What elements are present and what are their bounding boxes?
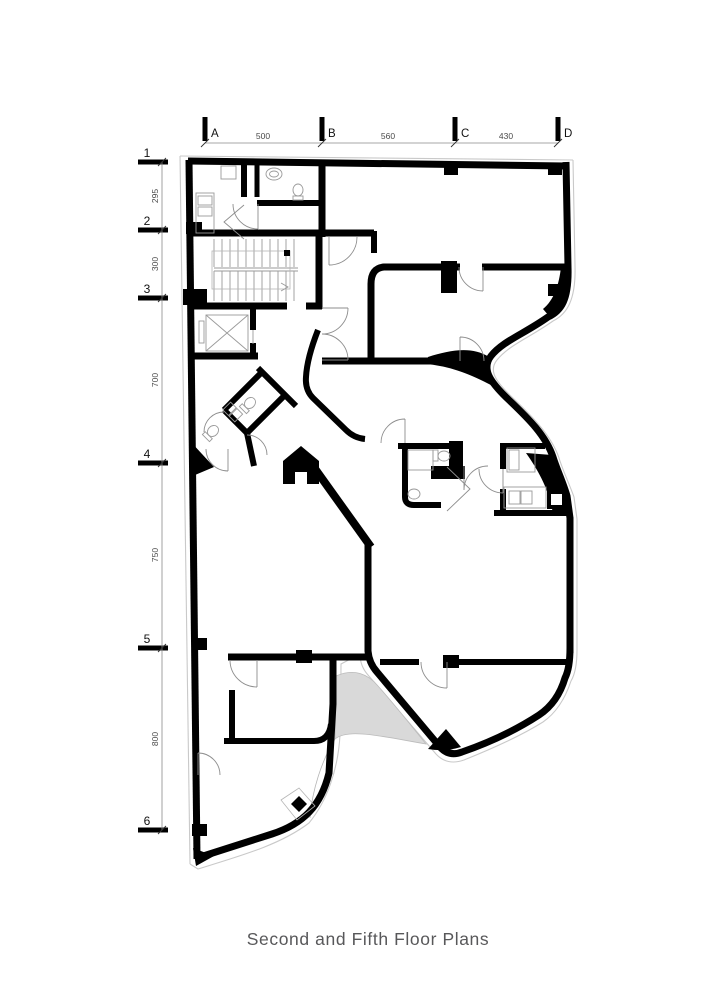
wall-block-right-bottom: [197, 660, 333, 858]
column-diamond: [291, 796, 307, 812]
dim-4-5: 750: [150, 548, 160, 562]
toilet-icon: [293, 184, 303, 196]
grid-label-c: C: [461, 128, 469, 140]
staircase: [212, 239, 298, 301]
grid-label-a: A: [211, 128, 219, 140]
stub-grid6: [192, 824, 207, 836]
grid-tick-B: [320, 117, 325, 141]
grid-tick-D: [556, 117, 561, 141]
door-right-room: [479, 469, 503, 493]
elevator-x-icon: [206, 315, 248, 351]
door-block-left: [198, 753, 220, 775]
elevator-rail: [199, 321, 204, 343]
stub-top-c: [444, 163, 458, 175]
grid-label-2: 2: [144, 214, 151, 228]
dim-5-6: 800: [150, 732, 160, 746]
grid-label-4: 4: [144, 447, 151, 461]
elevator: [199, 315, 253, 351]
wall-cluster-p2: [247, 395, 285, 433]
door-block-top: [230, 660, 257, 687]
dim-a-b: 500: [256, 131, 270, 141]
wall-right-curve: [487, 162, 570, 653]
grid-label-1: 1: [144, 146, 151, 160]
wall-corridor: [306, 330, 365, 439]
stub-top-d: [548, 163, 562, 175]
wall-block-inner-h: [224, 724, 331, 741]
grid-tick-C: [453, 117, 458, 141]
dim-2-3: 300: [150, 257, 160, 271]
core-pentagon: [283, 446, 319, 484]
drawing-title: Second and Fifth Floor Plans: [247, 929, 489, 949]
floor-plan: A B C D 500 560 430 1 2 3 4 5 6 295 300 …: [0, 0, 708, 1000]
grid-tick-A: [203, 117, 208, 141]
door-lobby-upper: [322, 308, 348, 334]
door-bath-topleft: [233, 204, 258, 229]
dim-c-d: 430: [499, 131, 513, 141]
dim-b-c: 560: [381, 131, 395, 141]
page: { "caption": "Second and Fifth Floor Pla…: [0, 0, 708, 1000]
grid-label-3: 3: [144, 282, 151, 296]
stub-grid5: [192, 638, 207, 650]
cabinet-icon: [221, 166, 236, 179]
kitchen-counter-icon: [504, 487, 546, 508]
stair-post: [284, 250, 290, 256]
grid-label-b: B: [328, 128, 336, 140]
toilet-icon: [239, 395, 257, 413]
grid-label-6: 6: [144, 814, 151, 828]
wall-cluster-s: [247, 433, 254, 466]
stub-sub-wall: [441, 261, 457, 293]
stub-br-inner: [443, 655, 459, 668]
door-midright-top: [381, 419, 405, 443]
toilet-icon: [438, 451, 450, 461]
stub-block-top: [296, 650, 312, 663]
stub-midright: [449, 441, 463, 467]
door-lobby-lower: [322, 334, 348, 360]
stub-grid2: [186, 222, 202, 234]
sink-icon: [266, 168, 282, 180]
walls: [188, 160, 570, 859]
door-stair-top: [329, 237, 357, 265]
sink-icon: [408, 489, 420, 499]
grid-label-d: D: [564, 128, 572, 140]
stub-grid3: [183, 289, 207, 305]
dim-3-4: 700: [150, 373, 160, 387]
stove-inner: [551, 494, 562, 505]
stair-direction-arrow: [281, 283, 288, 291]
stub-room-sq: [548, 284, 560, 296]
dim-1-2: 295: [150, 189, 160, 203]
wall-diagonal-mid: [313, 466, 371, 547]
bed-icon: [408, 450, 433, 470]
door-topright-sub: [459, 267, 483, 291]
wall-left: [189, 160, 197, 859]
grid-label-5: 5: [144, 632, 151, 646]
